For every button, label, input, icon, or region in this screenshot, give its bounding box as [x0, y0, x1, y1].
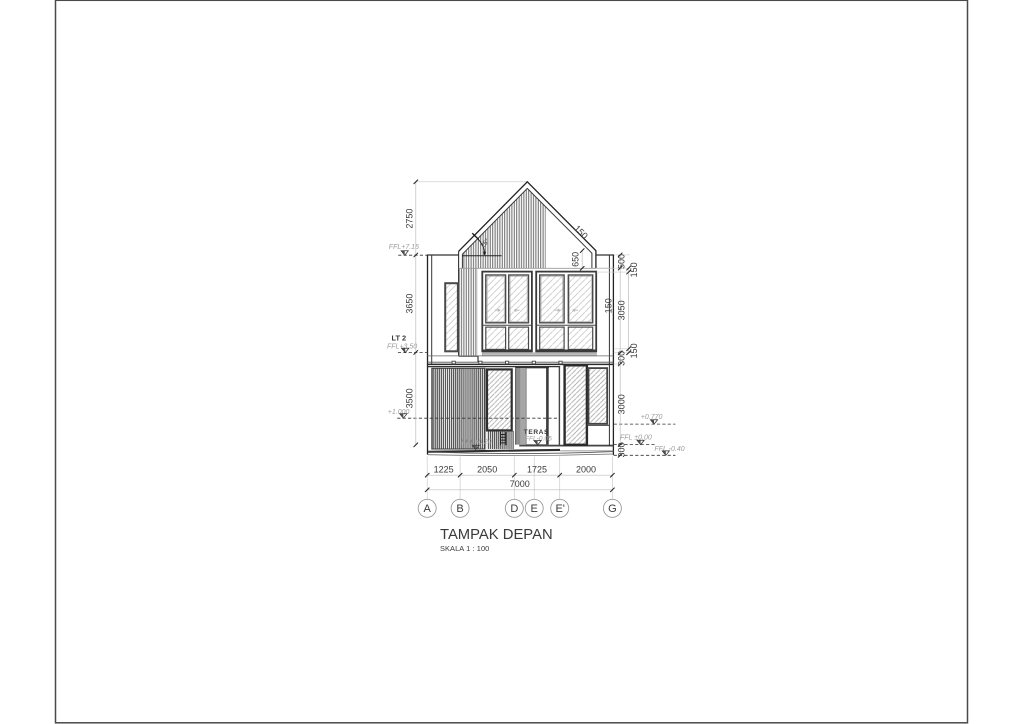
svg-text:2000: 2000: [576, 465, 596, 475]
svg-text:TAMPAK DEPAN: TAMPAK DEPAN: [440, 527, 553, 543]
svg-text:1225: 1225: [434, 465, 454, 475]
svg-text:E: E: [531, 503, 538, 515]
svg-text:3650: 3650: [404, 294, 414, 314]
svg-text:150: 150: [572, 223, 590, 241]
svg-text:A: A: [424, 503, 432, 515]
svg-text:150: 150: [629, 343, 639, 358]
svg-text:3050: 3050: [617, 300, 627, 320]
svg-text:300: 300: [617, 351, 627, 366]
svg-text:2750: 2750: [404, 209, 414, 229]
svg-text:LT 2: LT 2: [392, 334, 407, 343]
svg-text:SKALA 1 : 100: SKALA 1 : 100: [440, 544, 489, 553]
svg-text:2050: 2050: [477, 465, 497, 475]
svg-text:E': E': [555, 503, 564, 515]
svg-text:FFL-0.05: FFL-0.05: [525, 435, 552, 442]
svg-text:FFL ±0.00: FFL ±0.00: [620, 435, 652, 442]
svg-text:3000: 3000: [617, 394, 627, 414]
svg-text:3500: 3500: [404, 388, 414, 408]
svg-text:FFL+7.15: FFL+7.15: [389, 244, 419, 251]
svg-text:1725: 1725: [527, 465, 547, 475]
svg-text:300: 300: [617, 442, 627, 457]
svg-text:150: 150: [629, 262, 639, 277]
svg-text:D: D: [510, 503, 518, 515]
svg-text:150: 150: [604, 298, 614, 313]
svg-text:FFL -0.40: FFL -0.40: [654, 446, 684, 453]
svg-text:FFL+3.50: FFL+3.50: [387, 344, 417, 351]
svg-text:7000: 7000: [510, 479, 530, 489]
svg-text:650: 650: [570, 252, 580, 267]
svg-text:B: B: [456, 503, 463, 515]
svg-text:G: G: [608, 503, 617, 515]
svg-text:500: 500: [617, 254, 627, 269]
